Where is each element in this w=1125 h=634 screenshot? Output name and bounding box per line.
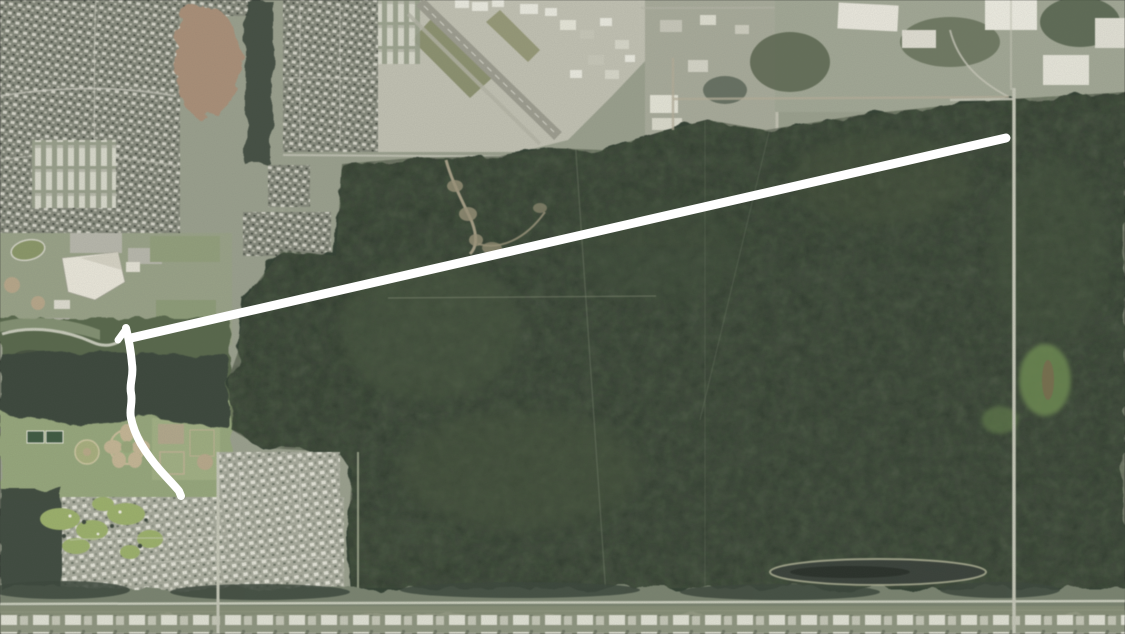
satellite-map-image [0, 0, 1125, 634]
satellite-map-screenshot [0, 0, 1125, 634]
grain-light-overlay [0, 0, 1125, 634]
